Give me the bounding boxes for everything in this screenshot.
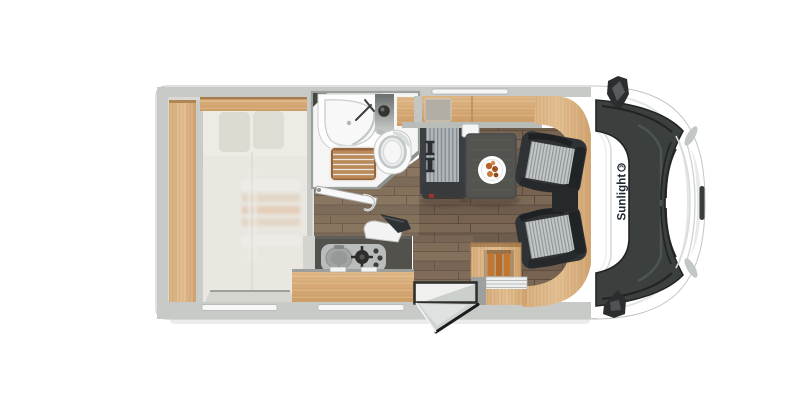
svg-text:Sunlight: Sunlight bbox=[617, 174, 629, 221]
